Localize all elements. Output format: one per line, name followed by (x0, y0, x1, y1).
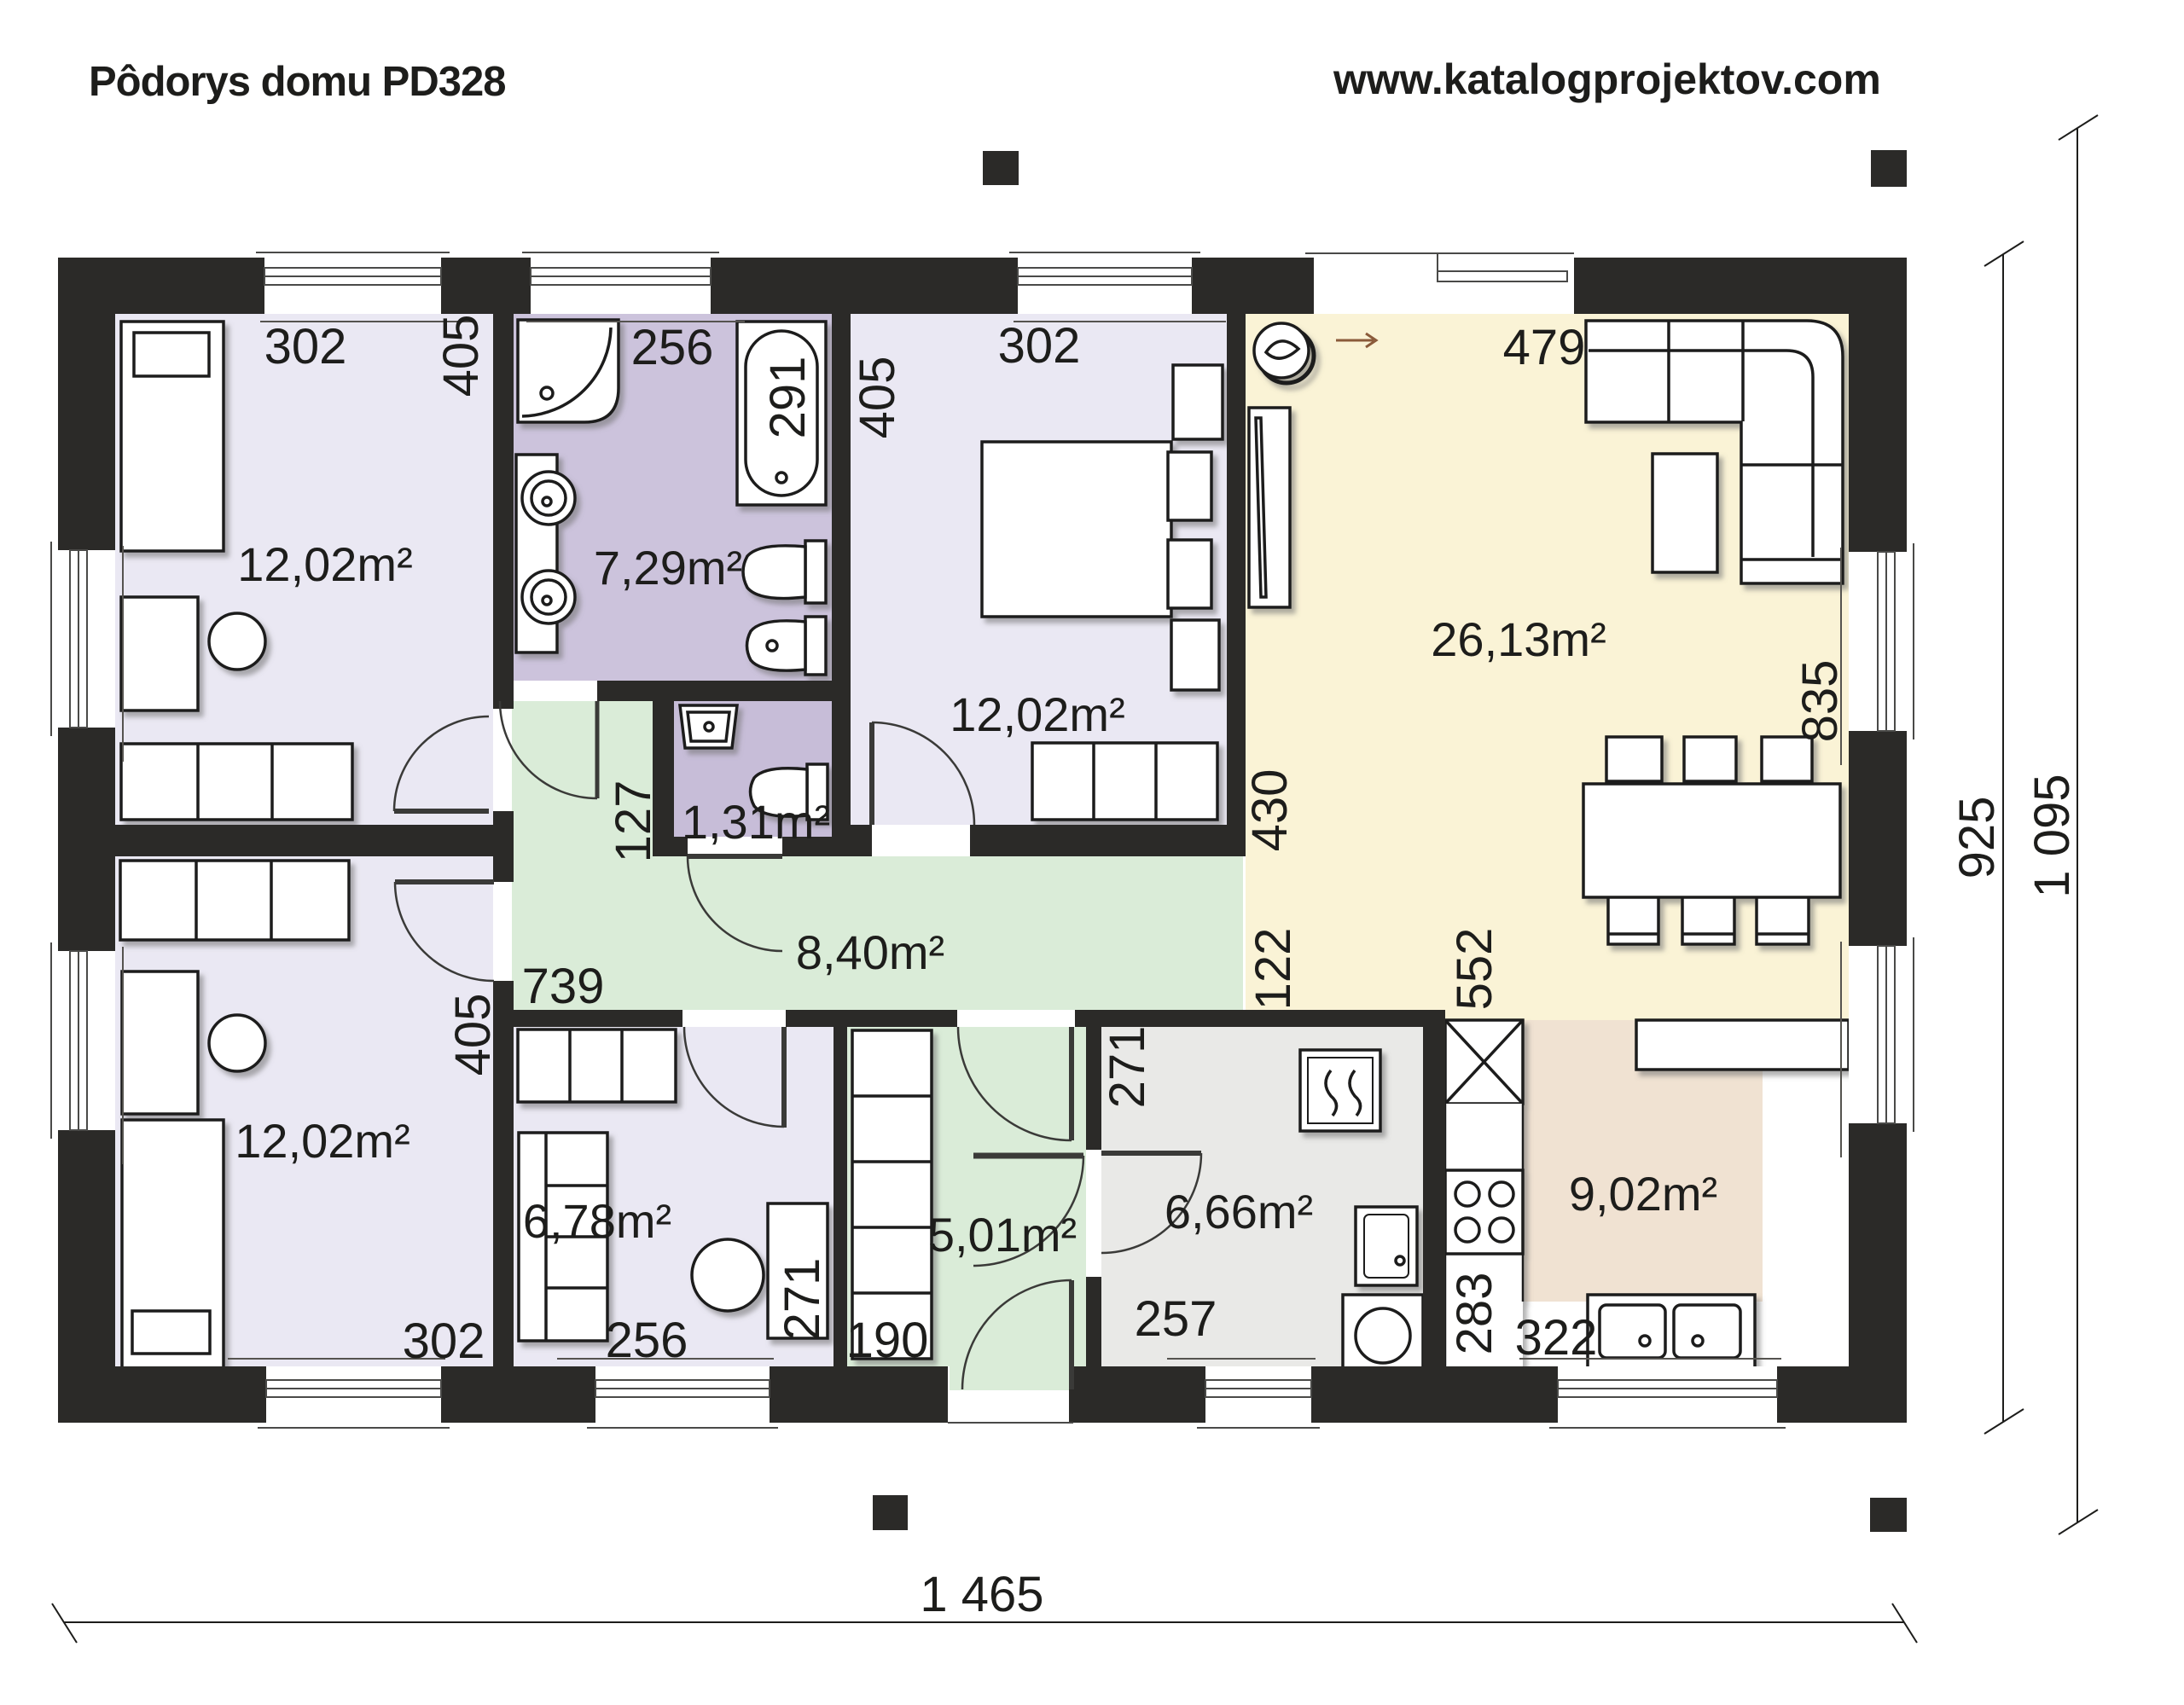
svg-text:322: 322 (1515, 1310, 1598, 1366)
svg-text:12,02m²: 12,02m² (950, 687, 1124, 741)
svg-text:925: 925 (1949, 797, 2005, 879)
svg-text:12,02m²: 12,02m² (235, 1114, 409, 1168)
svg-text:256: 256 (606, 1313, 688, 1368)
svg-text:6,78m²: 6,78m² (523, 1194, 671, 1248)
svg-text:1,31m²: 1,31m² (682, 795, 830, 849)
svg-text:7,29m²: 7,29m² (594, 541, 742, 594)
svg-text:291: 291 (760, 357, 816, 439)
svg-text:1 095: 1 095 (2024, 774, 2080, 897)
svg-text:Pôdorys domu PD328: Pôdorys domu PD328 (89, 59, 505, 105)
svg-text:127: 127 (606, 780, 661, 863)
svg-text:283: 283 (1447, 1273, 1502, 1355)
svg-text:271: 271 (1100, 1026, 1155, 1109)
svg-text:479: 479 (1503, 320, 1586, 375)
svg-text:122: 122 (1246, 928, 1301, 1011)
svg-text:5,01m²: 5,01m² (928, 1208, 1077, 1261)
svg-text:552: 552 (1447, 928, 1502, 1011)
svg-text:190: 190 (846, 1313, 929, 1368)
svg-text:405: 405 (850, 357, 905, 439)
svg-text:302: 302 (998, 318, 1081, 374)
svg-text:8,40m²: 8,40m² (796, 925, 944, 979)
svg-text:271: 271 (775, 1258, 830, 1341)
svg-text:256: 256 (631, 320, 714, 375)
svg-text:430: 430 (1242, 769, 1298, 852)
svg-text:405: 405 (433, 315, 489, 397)
svg-text:www.katalogprojektov.com: www.katalogprojektov.com (1333, 55, 1881, 103)
svg-text:6,66m²: 6,66m² (1165, 1185, 1313, 1238)
svg-text:26,13m²: 26,13m² (1431, 612, 1606, 666)
svg-text:257: 257 (1135, 1291, 1217, 1347)
svg-text:302: 302 (264, 319, 347, 374)
svg-text:405: 405 (445, 994, 501, 1076)
svg-text:835: 835 (1792, 660, 1848, 743)
svg-text:12,02m²: 12,02m² (237, 537, 412, 591)
svg-text:739: 739 (522, 959, 605, 1014)
svg-text:302: 302 (403, 1314, 485, 1369)
svg-text:9,02m²: 9,02m² (1569, 1167, 1717, 1221)
svg-text:1 465: 1 465 (920, 1567, 1043, 1622)
